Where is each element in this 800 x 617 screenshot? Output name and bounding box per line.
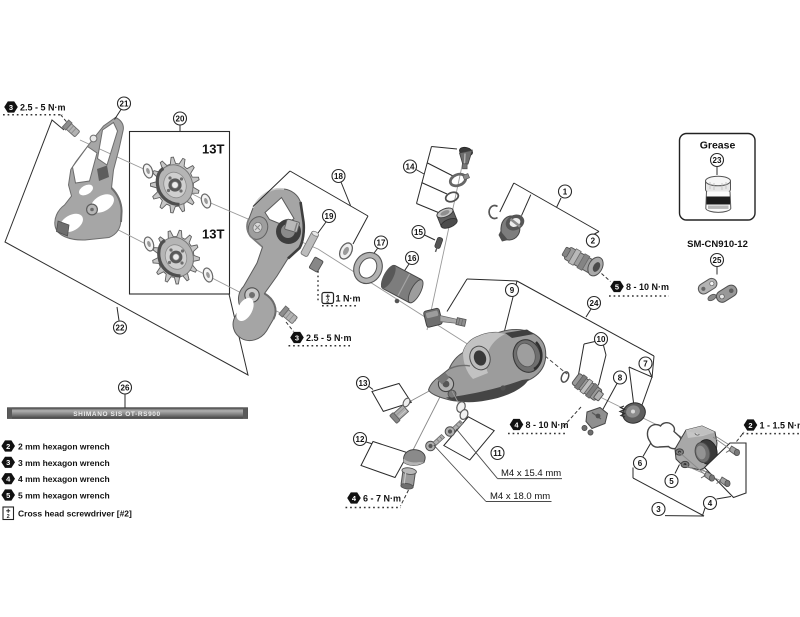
svg-text:11: 11	[493, 449, 502, 458]
svg-text:1 N·m: 1 N·m	[336, 294, 361, 304]
svg-text:3: 3	[656, 505, 661, 514]
svg-text:5: 5	[6, 491, 10, 500]
svg-text:24: 24	[590, 299, 599, 308]
svg-text:SHIMANO SIS OT-RS900: SHIMANO SIS OT-RS900	[73, 411, 161, 418]
svg-text:M4 x 18.0 mm: M4 x 18.0 mm	[490, 491, 550, 502]
svg-text:20: 20	[176, 115, 185, 124]
svg-text:7: 7	[643, 360, 648, 369]
svg-text:22: 22	[116, 324, 125, 333]
svg-text:19: 19	[325, 212, 334, 221]
svg-text:Grease: Grease	[700, 140, 736, 152]
svg-text:10: 10	[597, 335, 606, 344]
svg-text:2: 2	[7, 514, 10, 520]
svg-text:2: 2	[591, 237, 596, 246]
svg-text:2: 2	[6, 442, 10, 451]
svg-text:4: 4	[708, 499, 713, 508]
svg-text:9: 9	[510, 286, 515, 295]
svg-text:2 mm hexagon wrench: 2 mm hexagon wrench	[18, 442, 110, 452]
svg-text:13: 13	[359, 379, 368, 388]
svg-text:14: 14	[406, 163, 415, 172]
svg-text:13T: 13T	[202, 142, 224, 157]
svg-text:6 - 7 N·m: 6 - 7 N·m	[363, 494, 401, 504]
svg-text:5: 5	[669, 477, 674, 486]
svg-text:3: 3	[6, 458, 10, 467]
svg-text:23: 23	[713, 156, 722, 165]
svg-text:12: 12	[356, 435, 365, 444]
svg-text:17: 17	[377, 239, 386, 248]
svg-text:3: 3	[295, 333, 299, 342]
svg-text:8 - 10 N·m: 8 - 10 N·m	[526, 420, 569, 430]
svg-text:13T: 13T	[202, 227, 224, 242]
svg-text:2: 2	[326, 299, 329, 305]
svg-text:16: 16	[408, 254, 417, 263]
svg-text:5 mm hexagon wrench: 5 mm hexagon wrench	[18, 491, 110, 501]
svg-text:8 - 10 N·m: 8 - 10 N·m	[626, 282, 669, 292]
svg-text:3 mm hexagon wrench: 3 mm hexagon wrench	[18, 458, 110, 468]
svg-text:2: 2	[748, 421, 752, 430]
svg-text:18: 18	[334, 172, 343, 181]
svg-text:25: 25	[713, 256, 722, 265]
svg-text:M4 x 15.4 mm: M4 x 15.4 mm	[501, 468, 561, 479]
svg-text:21: 21	[120, 100, 129, 109]
svg-text:15: 15	[414, 228, 423, 237]
svg-text:5: 5	[615, 282, 619, 291]
svg-text:1 - 1.5 N·m: 1 - 1.5 N·m	[760, 421, 800, 431]
svg-text:6: 6	[638, 459, 643, 468]
svg-text:4 mm hexagon wrench: 4 mm hexagon wrench	[18, 474, 110, 484]
svg-text:2.5 - 5 N·m: 2.5 - 5 N·m	[306, 333, 352, 343]
svg-text:3: 3	[9, 103, 13, 112]
svg-text:SM-CN910-12: SM-CN910-12	[687, 239, 748, 250]
svg-text:2.5 - 5 N·m: 2.5 - 5 N·m	[20, 103, 66, 113]
svg-text:26: 26	[121, 384, 130, 393]
svg-text:Cross head screwdriver [#2]: Cross head screwdriver [#2]	[18, 509, 132, 519]
svg-text:8: 8	[618, 374, 623, 383]
svg-text:1: 1	[563, 188, 568, 197]
